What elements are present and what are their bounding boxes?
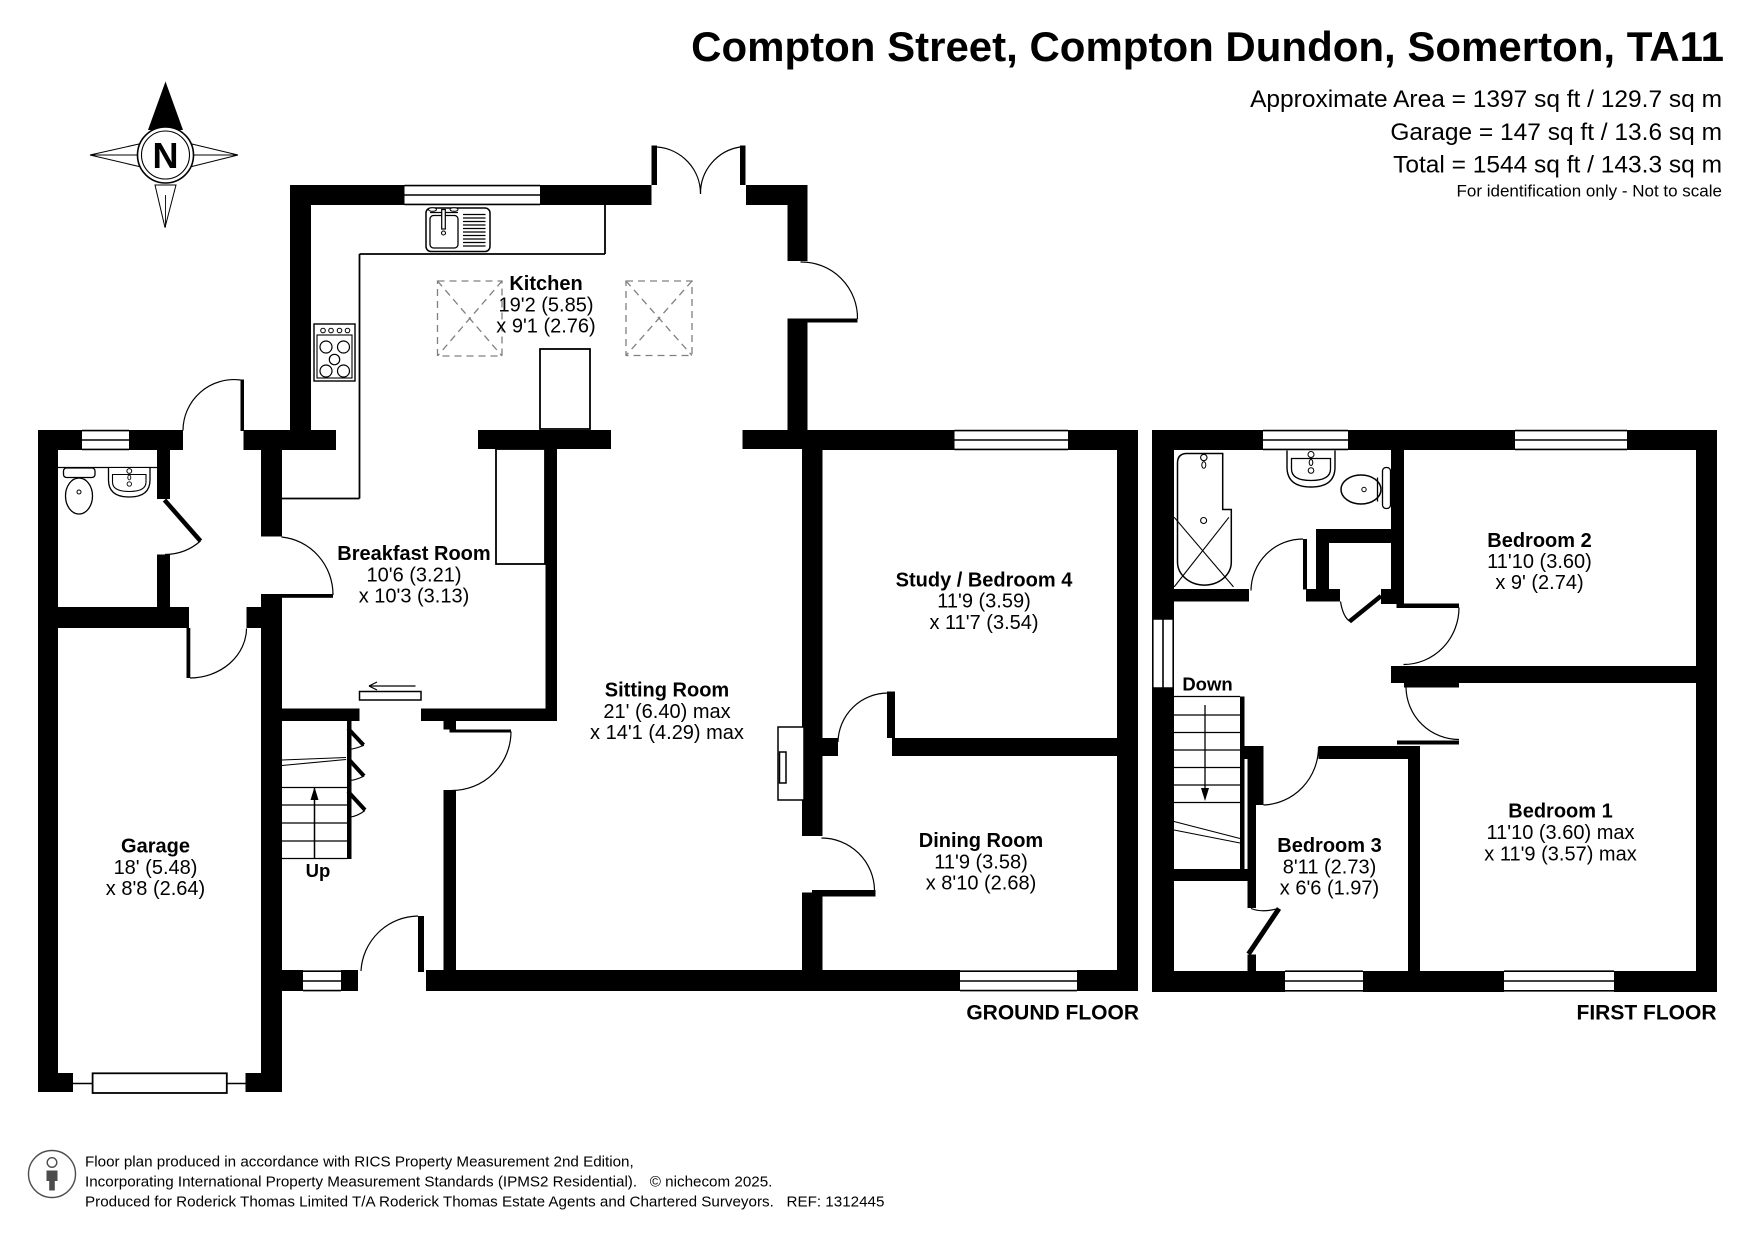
svg-text:x 8'10 (2.68): x 8'10 (2.68) <box>926 873 1037 895</box>
svg-text:Bedroom 1: Bedroom 1 <box>1508 801 1612 823</box>
svg-text:x 9' (2.74): x 9' (2.74) <box>1495 572 1583 594</box>
svg-text:11'10 (3.60): 11'10 (3.60) <box>1487 551 1592 573</box>
svg-text:FIRST FLOOR: FIRST FLOOR <box>1577 1002 1717 1025</box>
svg-text:Down: Down <box>1182 673 1232 694</box>
svg-text:Breakfast Room: Breakfast Room <box>337 543 490 565</box>
svg-text:Bedroom 3: Bedroom 3 <box>1277 835 1381 857</box>
svg-text:11'9 (3.58): 11'9 (3.58) <box>934 851 1028 873</box>
svg-text:18' (5.48): 18' (5.48) <box>114 857 198 879</box>
svg-text:x 10'3 (3.13): x 10'3 (3.13) <box>359 586 470 608</box>
svg-text:21' (6.40) max: 21' (6.40) max <box>603 701 730 723</box>
svg-text:Sitting Room: Sitting Room <box>605 680 729 702</box>
svg-text:10'6 (3.21): 10'6 (3.21) <box>367 564 462 586</box>
svg-text:Incorporating International Pr: Incorporating International Property Mea… <box>85 1173 772 1190</box>
svg-text:Garage = 147 sq ft / 13.6 sq m: Garage = 147 sq ft / 13.6 sq m <box>1390 119 1722 146</box>
svg-text:For identification only - Not: For identification only - Not to scale <box>1456 182 1722 201</box>
svg-text:Floor plan produced in accorda: Floor plan produced in accordance with R… <box>85 1153 634 1170</box>
svg-text:x 6'6 (1.97): x 6'6 (1.97) <box>1280 878 1379 900</box>
svg-text:Up: Up <box>306 860 331 881</box>
svg-text:N: N <box>153 135 179 176</box>
svg-text:Produced for Roderick Thomas L: Produced for Roderick Thomas Limited T/A… <box>85 1193 884 1210</box>
svg-text:GROUND FLOOR: GROUND FLOOR <box>966 1002 1139 1025</box>
svg-text:x 14'1 (4.29) max: x 14'1 (4.29) max <box>590 722 744 744</box>
svg-text:Bedroom 2: Bedroom 2 <box>1487 530 1591 552</box>
svg-text:Study / Bedroom 4: Study / Bedroom 4 <box>896 569 1074 591</box>
svg-text:x 8'8 (2.64): x 8'8 (2.64) <box>106 878 205 900</box>
svg-text:x 11'7 (3.54): x 11'7 (3.54) <box>929 612 1038 634</box>
svg-text:x 11'9 (3.57) max: x 11'9 (3.57) max <box>1484 843 1636 865</box>
svg-text:Kitchen: Kitchen <box>509 273 582 295</box>
svg-text:Compton Street, Compton Dundon: Compton Street, Compton Dundon, Somerton… <box>691 23 1724 70</box>
svg-text:19'2 (5.85): 19'2 (5.85) <box>499 294 594 316</box>
svg-text:Approximate Area = 1397 sq ft: Approximate Area = 1397 sq ft / 129.7 sq… <box>1250 86 1722 113</box>
svg-text:Garage: Garage <box>121 836 190 858</box>
svg-text:8'11 (2.73): 8'11 (2.73) <box>1283 856 1377 878</box>
svg-text:11'9 (3.59): 11'9 (3.59) <box>937 591 1031 613</box>
svg-text:x 9'1 (2.76): x 9'1 (2.76) <box>496 316 595 338</box>
svg-text:Dining Room: Dining Room <box>919 830 1043 852</box>
svg-text:Total = 1544 sq ft / 143.3 sq: Total = 1544 sq ft / 143.3 sq m <box>1393 152 1722 179</box>
svg-text:11'10 (3.60) max: 11'10 (3.60) max <box>1487 822 1635 844</box>
